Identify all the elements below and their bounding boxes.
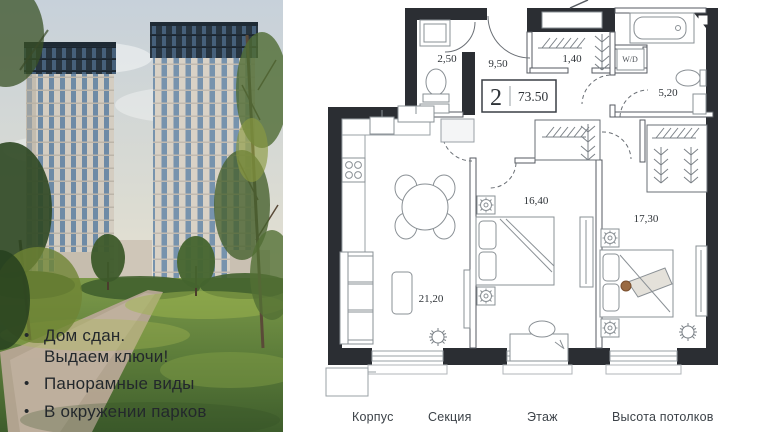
bullet-icon: • xyxy=(24,402,44,423)
wc-fixtures xyxy=(420,20,450,113)
summary-box: 2 73.50 xyxy=(482,80,556,112)
bullet-icon: • xyxy=(24,374,44,395)
table-icon xyxy=(402,184,448,230)
feature-text: В окружении парков xyxy=(44,402,207,423)
wc-sink-icon xyxy=(424,24,446,42)
plant-icon xyxy=(679,323,697,341)
room-label-living: 21,20 xyxy=(419,293,444,305)
room-label-hallway: 9,50 xyxy=(488,58,508,70)
room-label-bedroom1: 16,40 xyxy=(524,195,549,207)
feature-item: • В окружении парков xyxy=(24,402,274,423)
room-label-wc: 2,50 xyxy=(437,53,457,65)
feature-text: Дом сдан. xyxy=(44,326,168,347)
footer-korpus-label: Корпус xyxy=(352,410,394,424)
bullet-icon: • xyxy=(24,326,44,367)
washer-label: W/D xyxy=(622,55,638,64)
footer-sekcia-label: Секция xyxy=(428,410,472,424)
plant-icon xyxy=(429,328,447,346)
bedroom1-furniture xyxy=(476,196,593,361)
washer-dryer: W/D xyxy=(617,49,644,70)
floor-plan-drawing: W/D xyxy=(320,0,768,410)
closet-bedroom1 xyxy=(535,120,600,160)
bedroom2-furniture xyxy=(600,229,707,337)
closet-bedroom2 xyxy=(647,125,707,192)
sink-icon xyxy=(693,94,706,114)
desk-icon xyxy=(510,334,568,361)
footer-ceiling-label: Высота потолков xyxy=(612,410,714,424)
building-photo: • Дом сдан.Выдаем ключи! • Панорамные ви… xyxy=(0,0,283,432)
total-area: 73.50 xyxy=(518,89,549,104)
rooms-count: 2 xyxy=(490,85,502,111)
coffee-table xyxy=(392,272,412,314)
shower-icon xyxy=(699,16,707,24)
feature-list: • Дом сдан.Выдаем ключи! • Панорамные ви… xyxy=(24,326,274,430)
room-label-bathroom: 5,20 xyxy=(658,87,678,99)
floor-plan: W/D xyxy=(320,0,768,410)
dining-table xyxy=(395,175,455,239)
entrance-door-leaf xyxy=(570,0,588,8)
feature-text: Панорамные виды xyxy=(44,374,195,395)
chair-icon xyxy=(529,321,555,337)
feature-text: Выдаем ключи! xyxy=(44,347,168,368)
feature-item: • Дом сдан.Выдаем ключи! xyxy=(24,326,274,367)
stove-icon xyxy=(342,158,365,182)
tv-console xyxy=(464,270,470,328)
hall-cabinet xyxy=(441,119,474,142)
room-label-bedroom2: 17,30 xyxy=(634,213,659,225)
toilet-icon xyxy=(426,69,446,95)
footer-etazh-label: Этаж xyxy=(527,410,558,424)
entrance-door xyxy=(542,12,602,28)
sofa xyxy=(340,252,373,344)
toilet-icon xyxy=(676,70,700,86)
feature-item: • Панорамные виды xyxy=(24,374,274,395)
balcony xyxy=(326,368,376,396)
kitchen-sink-icon xyxy=(370,117,394,134)
room-label-closet: 1,40 xyxy=(562,53,582,65)
